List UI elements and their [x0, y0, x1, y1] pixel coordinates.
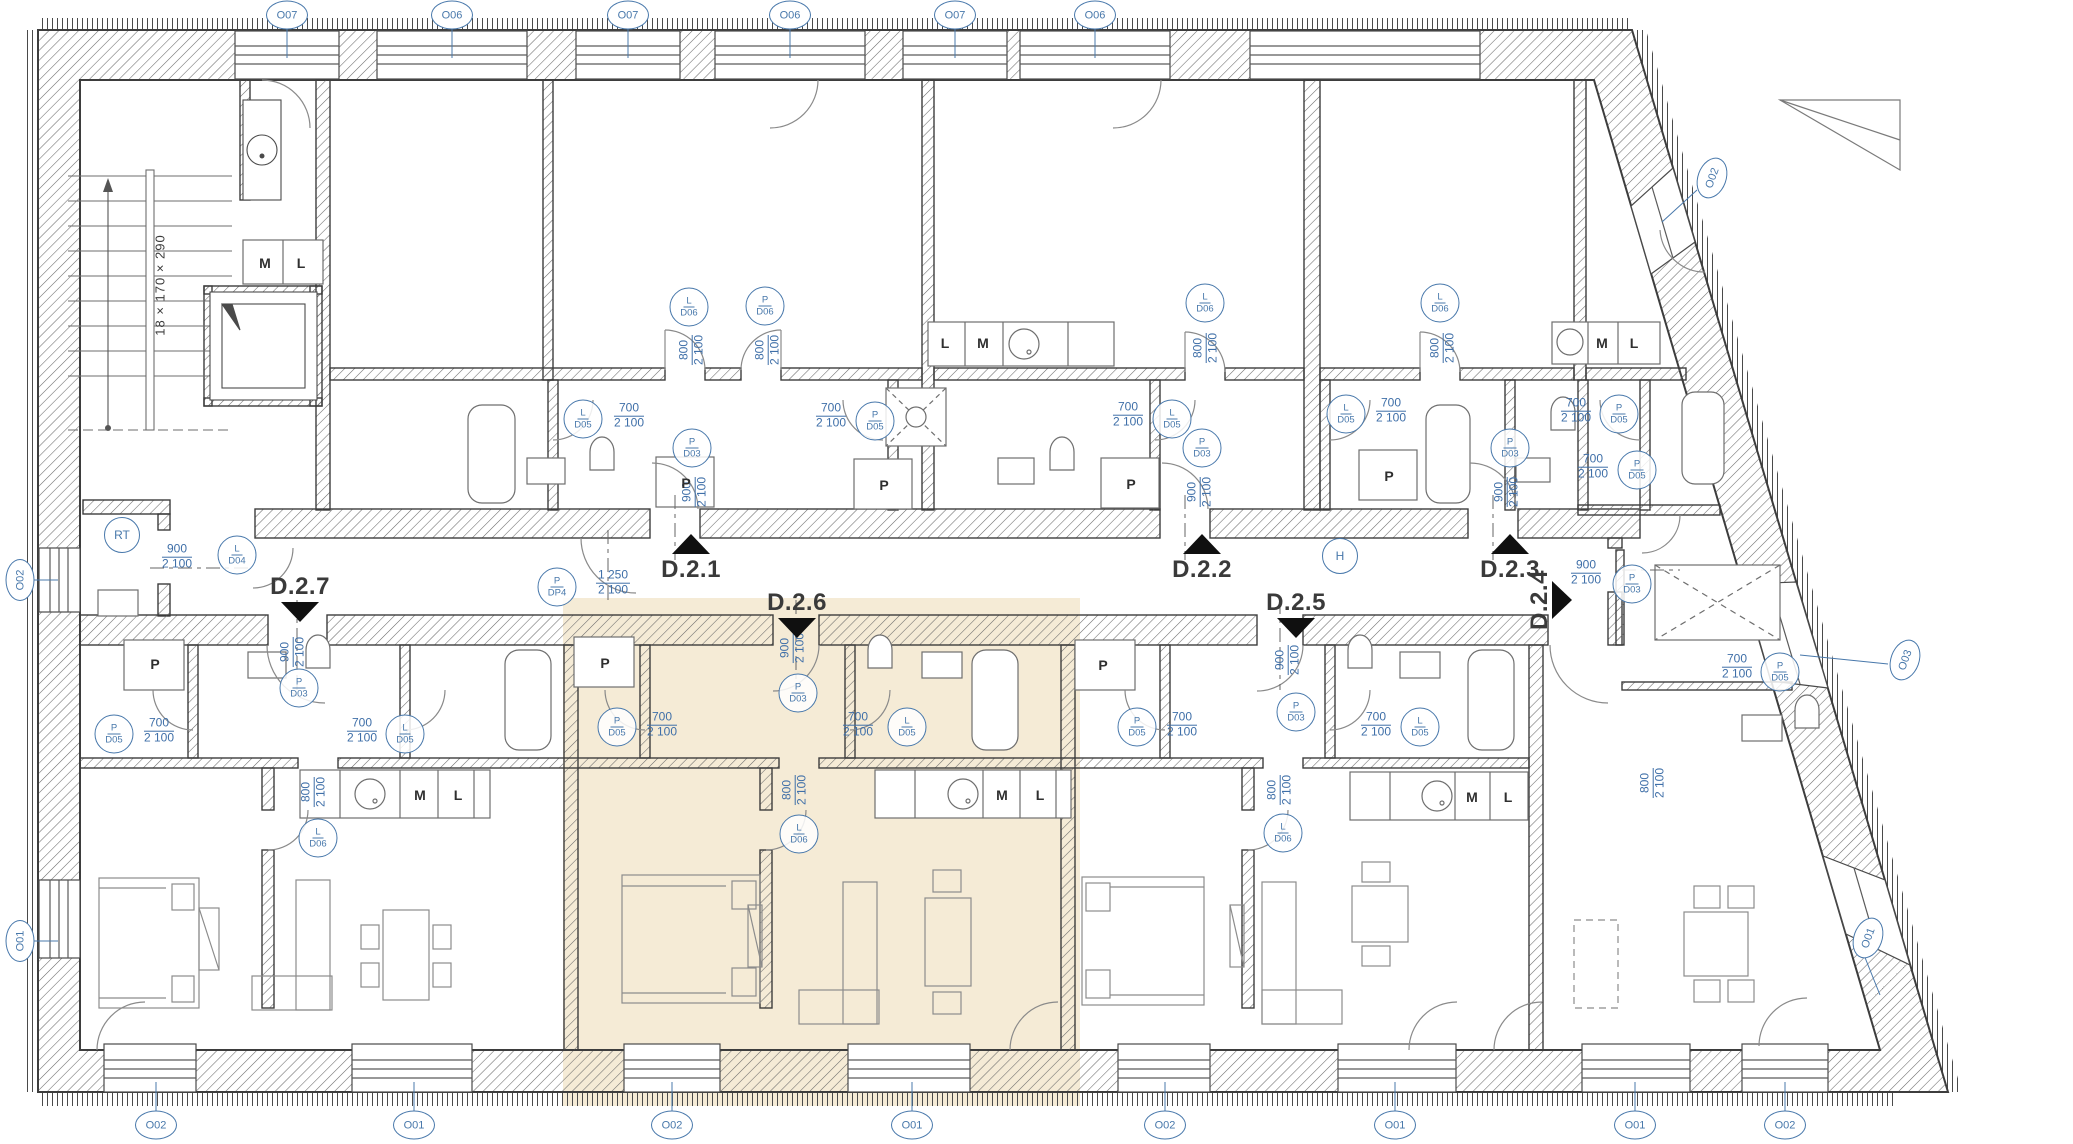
- sink: [1400, 652, 1440, 678]
- bathtub: [1426, 405, 1470, 503]
- sink: [248, 652, 286, 678]
- sink: [1516, 458, 1550, 482]
- toilet: [590, 437, 614, 470]
- floor-plan-page: 18 × 170 × 290 O07O06O07O06O07O06O02O01O…: [0, 0, 2073, 1144]
- roof-outline: [1780, 100, 1900, 170]
- toilet: [306, 635, 330, 668]
- toilet: [1348, 635, 1372, 668]
- toilet: [868, 635, 892, 668]
- bathtub: [468, 405, 515, 503]
- dining-table: [361, 910, 451, 1000]
- sink: [1742, 715, 1782, 741]
- kitchen-d26: [875, 770, 1071, 818]
- bathtub: [972, 650, 1018, 750]
- toilet: [1551, 397, 1575, 430]
- bathtub: [1682, 392, 1724, 484]
- window-top-group: [235, 31, 1480, 79]
- kitchen-upper-left: [243, 240, 323, 284]
- bathtub: [1468, 650, 1514, 750]
- bed: [99, 878, 199, 1008]
- kitchen-d23: [1552, 322, 1660, 364]
- sink: [98, 590, 138, 616]
- intercom-cell: [243, 100, 281, 200]
- sink: [922, 652, 962, 678]
- kitchen-d22: [928, 322, 1114, 366]
- elevator: [210, 292, 317, 400]
- bathtub: [505, 650, 551, 750]
- sink: [527, 458, 565, 484]
- sink: [998, 458, 1034, 484]
- toilet: [1795, 695, 1819, 728]
- kitchen-d27: [300, 770, 490, 818]
- shower: [1655, 565, 1780, 640]
- dining-table: [1352, 862, 1408, 966]
- dining-table: [1684, 886, 1754, 1002]
- bed: [1082, 877, 1204, 1005]
- toilet: [1050, 437, 1074, 470]
- shower: [886, 388, 946, 446]
- sofa: [1262, 882, 1342, 1024]
- floor-plan-drawing: [0, 0, 2073, 1144]
- sofa-dashed: [1574, 920, 1618, 1008]
- kitchen-d25: [1350, 772, 1528, 820]
